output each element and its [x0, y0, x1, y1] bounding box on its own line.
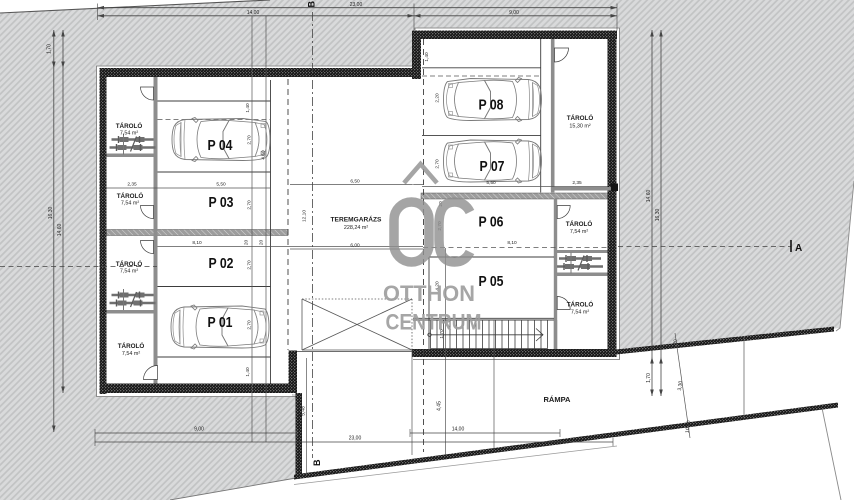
- svg-text:7,54 m²: 7,54 m²: [122, 351, 140, 357]
- svg-text:1,40: 1,40: [245, 367, 251, 377]
- svg-text:TÁROLÓ: TÁROLÓ: [566, 219, 593, 228]
- svg-text:TEREMGARÁZS: TEREMGARÁZS: [331, 215, 383, 224]
- svg-text:P 07: P 07: [480, 159, 505, 175]
- svg-text:7,54 m²: 7,54 m²: [570, 229, 588, 235]
- svg-text:14,00: 14,00: [247, 10, 260, 16]
- svg-text:B: B: [307, 1, 317, 8]
- svg-text:CENTRUM: CENTRUM: [386, 310, 482, 335]
- svg-text:1,40: 1,40: [245, 103, 251, 113]
- svg-text:14,00: 14,00: [452, 427, 465, 433]
- svg-text:P 03: P 03: [209, 195, 234, 211]
- svg-text:14,60: 14,60: [646, 190, 652, 203]
- svg-text:6,00: 6,00: [350, 243, 360, 249]
- svg-text:P 08: P 08: [479, 98, 504, 114]
- svg-text:TÁROLÓ: TÁROLÓ: [117, 191, 144, 200]
- svg-text:2,70: 2,70: [435, 159, 441, 169]
- svg-text:P 06: P 06: [479, 215, 504, 231]
- svg-text:P 05: P 05: [479, 274, 504, 290]
- svg-text:7,54 m²: 7,54 m²: [120, 131, 138, 137]
- svg-text:12,10: 12,10: [302, 210, 308, 222]
- svg-text:1,70: 1,70: [47, 44, 53, 54]
- svg-text:B: B: [312, 459, 322, 466]
- svg-text:16,30: 16,30: [655, 209, 661, 222]
- svg-text:14,60: 14,60: [57, 224, 63, 237]
- svg-text:23,00: 23,00: [349, 436, 362, 442]
- svg-text:P 02: P 02: [209, 256, 234, 272]
- svg-text:1,70: 1,70: [646, 373, 652, 383]
- svg-text:7,54 m²: 7,54 m²: [571, 310, 589, 316]
- svg-text:P 01: P 01: [208, 315, 233, 331]
- svg-text:2,70: 2,70: [247, 200, 253, 210]
- svg-text:RÁMPA: RÁMPA: [544, 395, 572, 404]
- svg-text:TÁROLÓ: TÁROLÓ: [116, 121, 143, 130]
- svg-text:2,70: 2,70: [247, 320, 253, 330]
- svg-text:4,45: 4,45: [437, 401, 443, 411]
- svg-text:2,70: 2,70: [247, 135, 253, 145]
- svg-text:P 04: P 04: [208, 138, 233, 154]
- svg-text:9,00: 9,00: [194, 427, 204, 433]
- svg-text:5,48: 5,48: [301, 406, 307, 416]
- svg-text:7,54 m²: 7,54 m²: [121, 201, 139, 207]
- svg-text:8,10: 8,10: [192, 240, 202, 246]
- svg-text:15,30 m²: 15,30 m²: [569, 124, 590, 130]
- svg-text:7,54 m²: 7,54 m²: [120, 269, 138, 275]
- svg-text:20: 20: [244, 240, 250, 246]
- svg-text:TÁROLÓ: TÁROLÓ: [567, 300, 594, 309]
- svg-text:OTTHON: OTTHON: [383, 281, 475, 306]
- svg-text:5,50: 5,50: [486, 180, 496, 186]
- svg-text:4,60: 4,60: [261, 150, 267, 160]
- svg-text:5,50: 5,50: [216, 182, 226, 188]
- svg-text:TÁROLÓ: TÁROLÓ: [567, 113, 594, 122]
- svg-text:2,20: 2,20: [435, 93, 441, 103]
- svg-text:23,00: 23,00: [350, 2, 363, 8]
- svg-text:228,24 m²: 228,24 m²: [344, 225, 368, 231]
- svg-text:2,70: 2,70: [247, 260, 253, 270]
- svg-text:6,50: 6,50: [350, 179, 360, 185]
- svg-text:20: 20: [259, 240, 265, 246]
- svg-text:2,35: 2,35: [572, 180, 582, 186]
- svg-text:TÁROLÓ: TÁROLÓ: [118, 341, 145, 350]
- svg-text:16,30: 16,30: [48, 207, 54, 220]
- svg-text:1,40: 1,40: [424, 52, 430, 62]
- svg-text:9,00: 9,00: [509, 10, 519, 16]
- svg-text:8,10: 8,10: [507, 240, 517, 246]
- svg-text:A: A: [795, 243, 802, 254]
- svg-text:2,35: 2,35: [127, 182, 137, 188]
